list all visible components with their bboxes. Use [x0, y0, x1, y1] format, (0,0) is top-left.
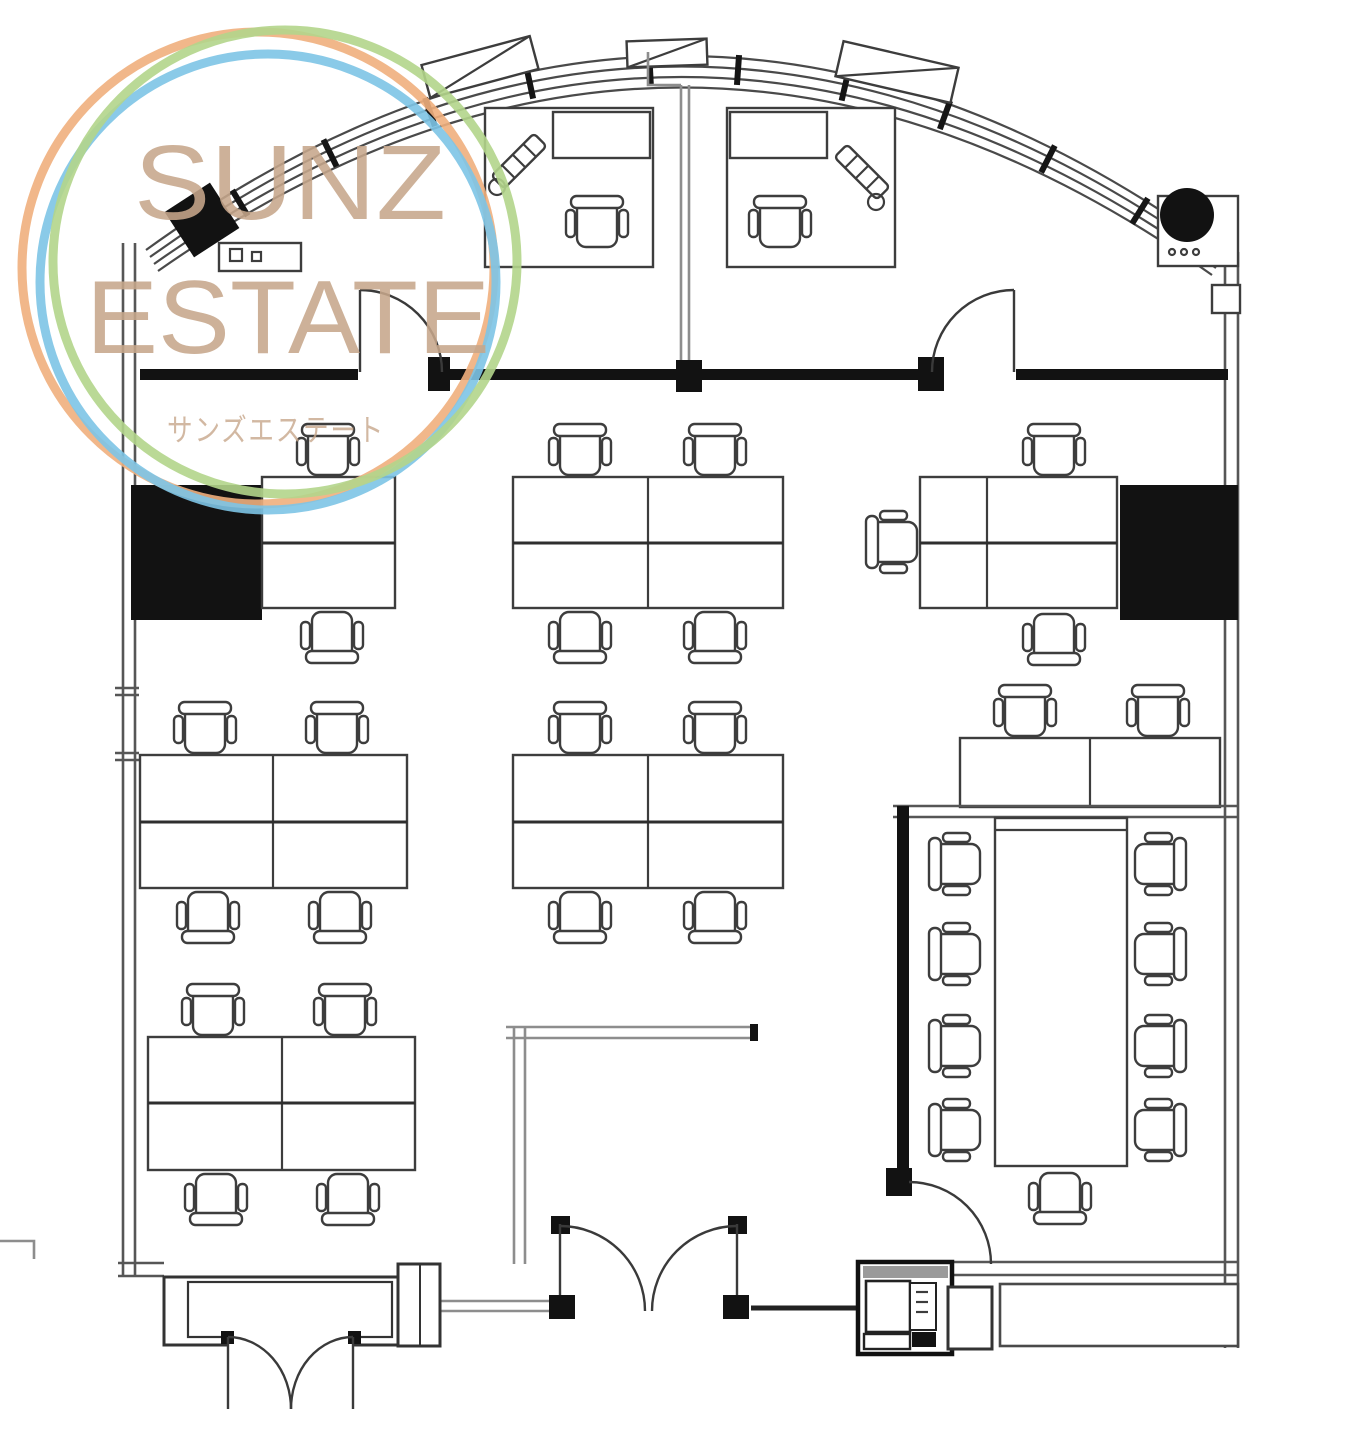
entrance-vestibule: [164, 1264, 440, 1409]
office-chair-icon: [1127, 685, 1189, 736]
conference-room: [886, 806, 1239, 1275]
office-chair-icon: [549, 612, 611, 663]
floorplan-page: SUNZ ESTATE サンズエステート: [0, 0, 1364, 1440]
office-chair-icon: [929, 1015, 980, 1077]
desk-cluster-icon: [960, 685, 1220, 807]
office-chair-icon: [309, 892, 371, 943]
office-chair-icon: [684, 424, 746, 475]
logo-title-line1: SUNZ: [134, 124, 446, 242]
office-chair-icon: [549, 702, 611, 753]
desk-cluster-icon: [140, 702, 407, 943]
office-chair-icon: [929, 1099, 980, 1161]
office-chair-icon: [1135, 1099, 1186, 1161]
office-chair-icon: [994, 685, 1056, 736]
office-chair-icon: [301, 612, 363, 663]
office-chair-icon: [1135, 923, 1186, 985]
exterior-corridor: [1000, 1284, 1238, 1346]
office-chair-icon: [1135, 833, 1186, 895]
office-chair-icon: [1023, 614, 1085, 665]
column-icon: [1120, 485, 1238, 620]
service-cabinet: [948, 1287, 992, 1349]
logo-title-line2: ESTATE: [86, 260, 490, 376]
office-chair-icon: [177, 892, 239, 943]
column-icon: [1158, 188, 1238, 266]
office-chair-icon: [684, 702, 746, 753]
office-chair-icon: [549, 424, 611, 475]
logo-subtitle: サンズエステート: [167, 413, 385, 448]
desk-cluster-icon: [866, 424, 1117, 665]
office-chair-icon: [929, 833, 980, 895]
conference-table-icon: [995, 818, 1127, 1166]
office-chair-icon: [684, 892, 746, 943]
office-chair-icon: [174, 702, 236, 753]
office-chair-icon: [185, 1174, 247, 1225]
office-chair-icon: [306, 702, 368, 753]
watermark-logo: SUNZ ESTATE サンズエステート: [22, 30, 517, 510]
desk-cluster-icon: [513, 424, 783, 663]
desk-cluster-icon: [148, 984, 415, 1225]
double-door-icon: [549, 1216, 749, 1319]
copier-icon: [858, 1262, 952, 1354]
office-chair-icon: [182, 984, 244, 1035]
office-chair-icon: [866, 511, 917, 573]
office-chair-icon: [1029, 1173, 1091, 1224]
office-chair-icon: [684, 612, 746, 663]
desk-cluster-icon: [262, 424, 395, 663]
office-chair-icon: [1135, 1015, 1186, 1077]
executive-workstation-icon: [727, 108, 895, 267]
executive-workstation-icon: [485, 108, 653, 267]
office-chair-icon: [314, 984, 376, 1035]
office-chair-icon: [549, 892, 611, 943]
office-chair-icon: [317, 1174, 379, 1225]
door-swing-icon: [886, 1168, 991, 1264]
office-chair-icon: [929, 923, 980, 985]
left-wall: [115, 243, 139, 1277]
desk-cluster-icon: [513, 702, 783, 943]
door-swing-icon: [932, 290, 1014, 372]
office-chair-icon: [1023, 424, 1085, 475]
